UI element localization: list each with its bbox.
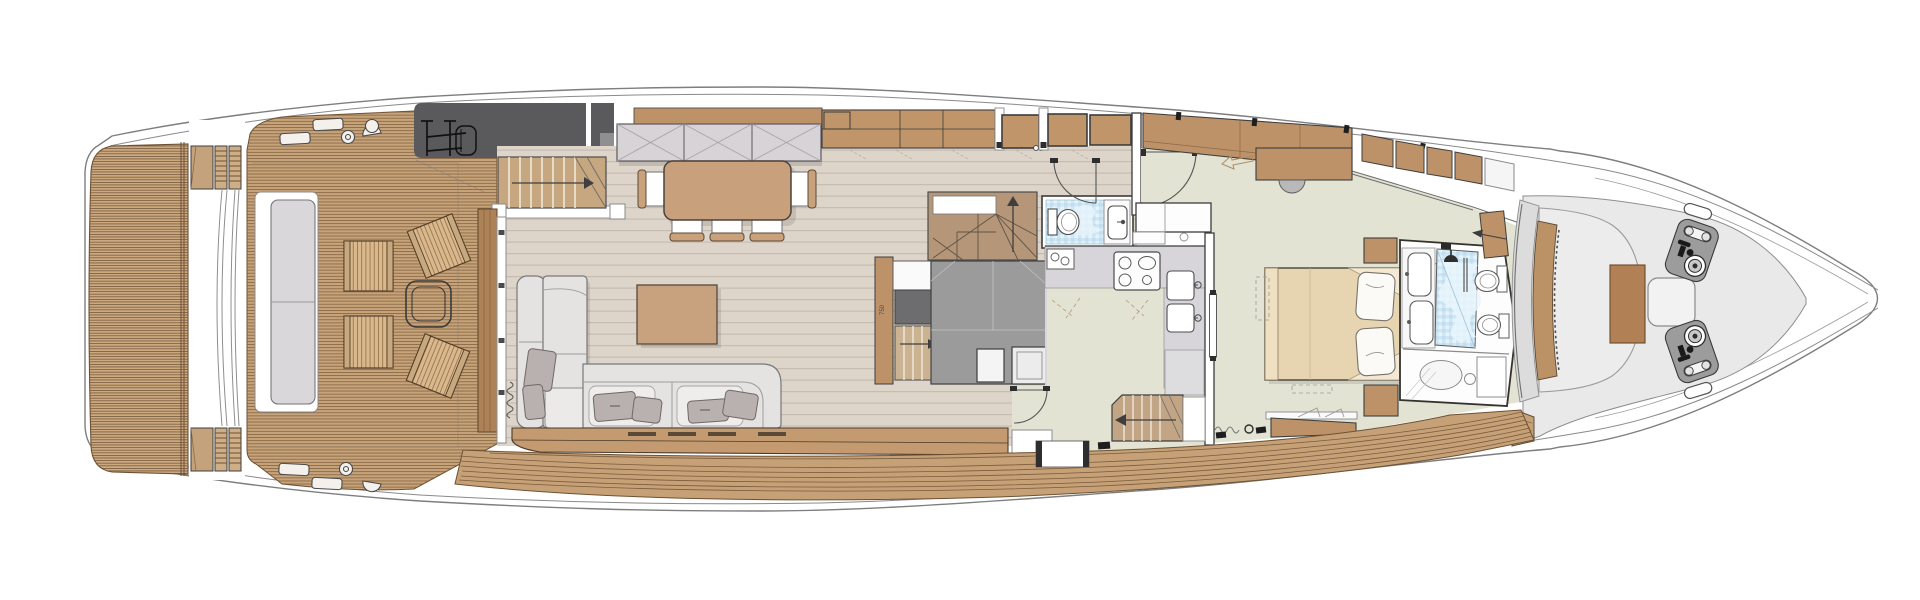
svg-text:750: 750 — [880, 304, 886, 315]
